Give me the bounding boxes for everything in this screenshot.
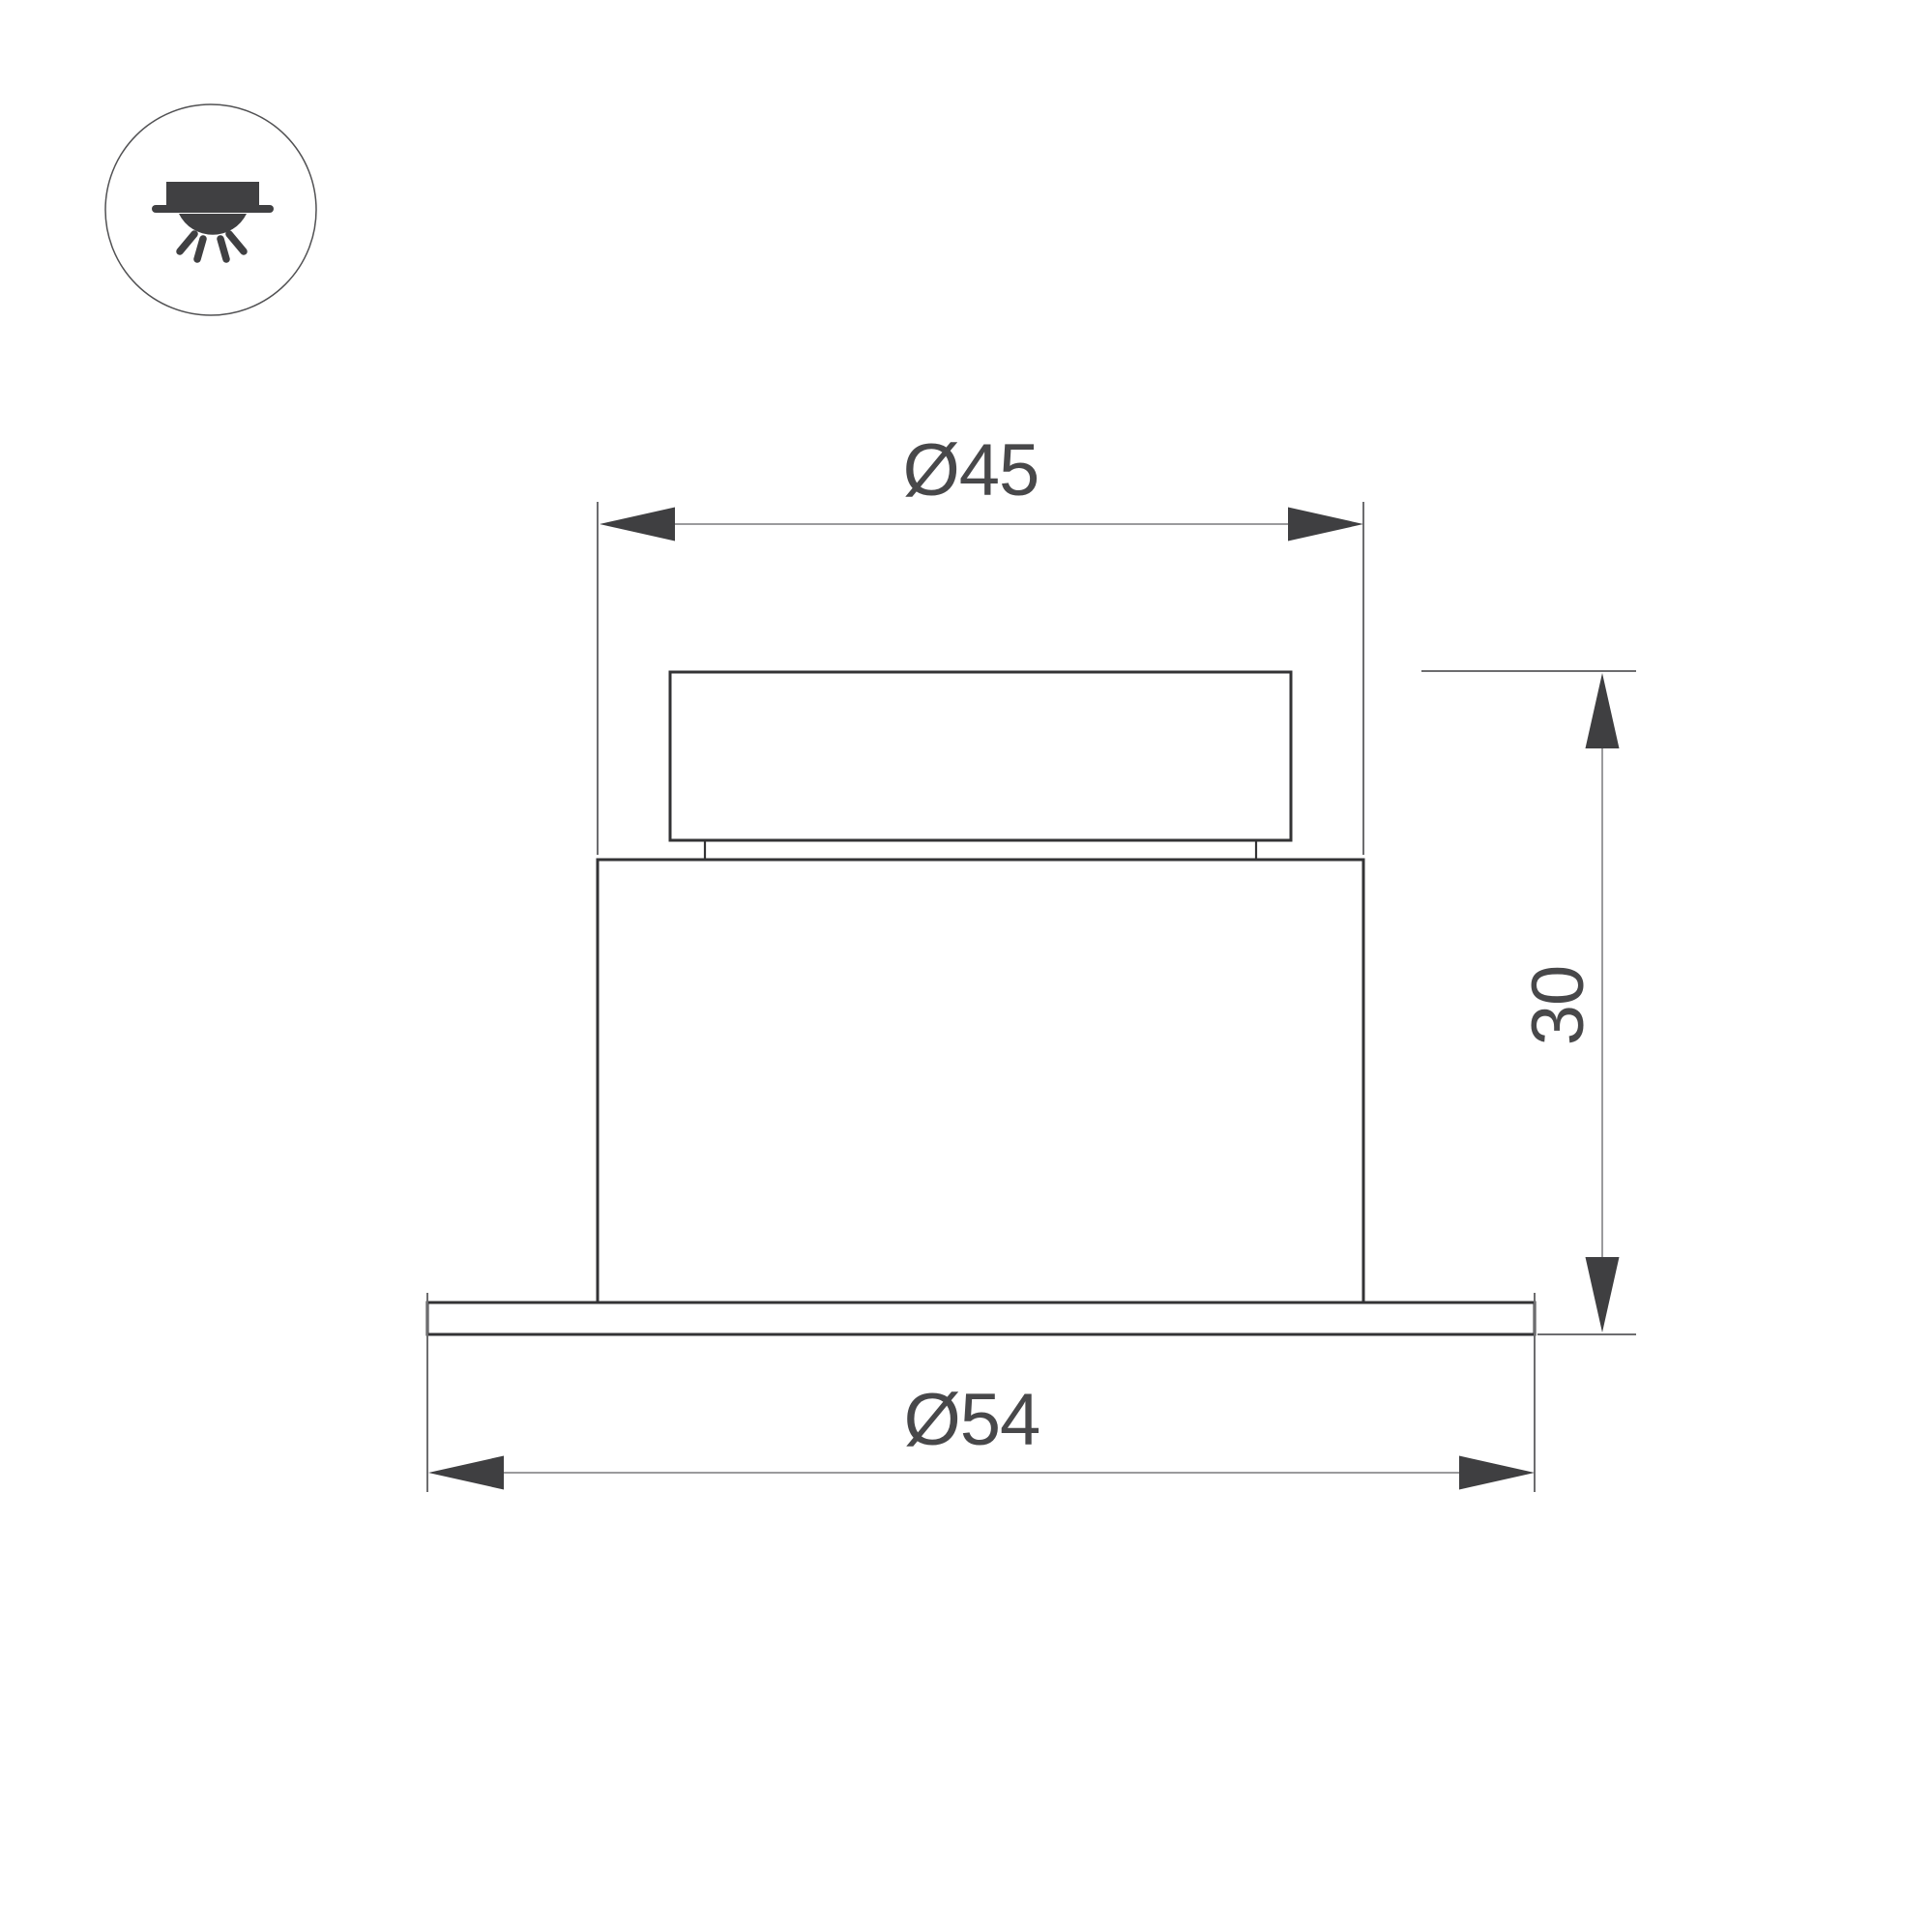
arrowhead-left	[428, 1456, 504, 1490]
fixture-flange	[427, 1303, 1535, 1334]
arrowhead-down	[1586, 1257, 1620, 1332]
arrowhead-up	[1586, 673, 1620, 748]
icon-diffuser-dome	[179, 214, 247, 235]
label-flange-diameter: Ø54	[904, 1384, 1040, 1457]
dimension-top-diameter	[598, 502, 1363, 855]
icon-light-ray	[197, 239, 203, 259]
fixture-outline	[427, 672, 1535, 1334]
icon-housing	[166, 182, 259, 209]
arrowhead-right	[1459, 1456, 1535, 1490]
fixture-body	[598, 860, 1363, 1303]
label-top-diameter: Ø45	[903, 434, 1039, 508]
icon-flange-bar	[152, 205, 274, 213]
recessed-downlight-icon	[105, 104, 316, 315]
fixture-top-housing	[670, 672, 1291, 840]
arrowhead-right	[1288, 508, 1363, 542]
icon-light-ray	[220, 239, 226, 259]
icon-light-ray	[229, 234, 244, 251]
arrowhead-left	[600, 508, 675, 542]
drawing-svg	[0, 0, 1932, 1932]
icon-light-ray	[180, 234, 194, 251]
label-height: 30	[1522, 966, 1595, 1046]
dimension-drawing-page: Ø45 30 Ø54	[0, 0, 1932, 1932]
